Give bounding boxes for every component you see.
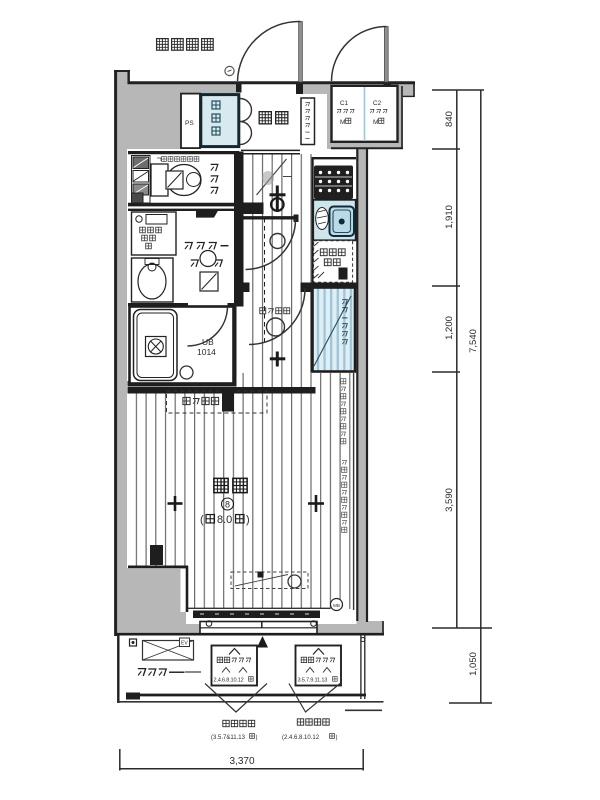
svg-text:EV: EV bbox=[181, 641, 188, 647]
svg-text:8: 8 bbox=[225, 500, 230, 510]
svg-text:840: 840 bbox=[444, 111, 455, 127]
svg-text:8.0: 8.0 bbox=[217, 514, 232, 526]
svg-text:(3.5.7&11.13: (3.5.7&11.13 bbox=[211, 735, 246, 741]
svg-text:7,540: 7,540 bbox=[468, 329, 479, 353]
svg-text:3,370: 3,370 bbox=[229, 756, 254, 767]
svg-text:2.4.6.8.10.12: 2.4.6.8.10.12 bbox=[214, 678, 244, 684]
svg-text:M: M bbox=[340, 119, 345, 126]
svg-text:3.5.7.9.11.13: 3.5.7.9.11.13 bbox=[298, 678, 328, 684]
svg-text:(: ( bbox=[200, 514, 204, 526]
svg-text:(2.4.6.8.10.12: (2.4.6.8.10.12 bbox=[282, 735, 320, 741]
svg-text:C2: C2 bbox=[373, 100, 382, 107]
svg-text:1014: 1014 bbox=[197, 347, 216, 357]
svg-text:3,590: 3,590 bbox=[444, 488, 455, 512]
svg-text:PS: PS bbox=[185, 120, 194, 127]
svg-text:C1: C1 bbox=[340, 100, 349, 107]
svg-text:1,200: 1,200 bbox=[444, 316, 455, 340]
svg-text:): ) bbox=[246, 514, 250, 526]
svg-text:1,050: 1,050 bbox=[468, 652, 479, 676]
svg-text:): ) bbox=[336, 735, 338, 741]
svg-text:M: M bbox=[373, 119, 378, 126]
svg-text:1,910: 1,910 bbox=[444, 205, 455, 229]
svg-text:MB: MB bbox=[333, 603, 340, 608]
svg-text:): ) bbox=[256, 735, 258, 741]
